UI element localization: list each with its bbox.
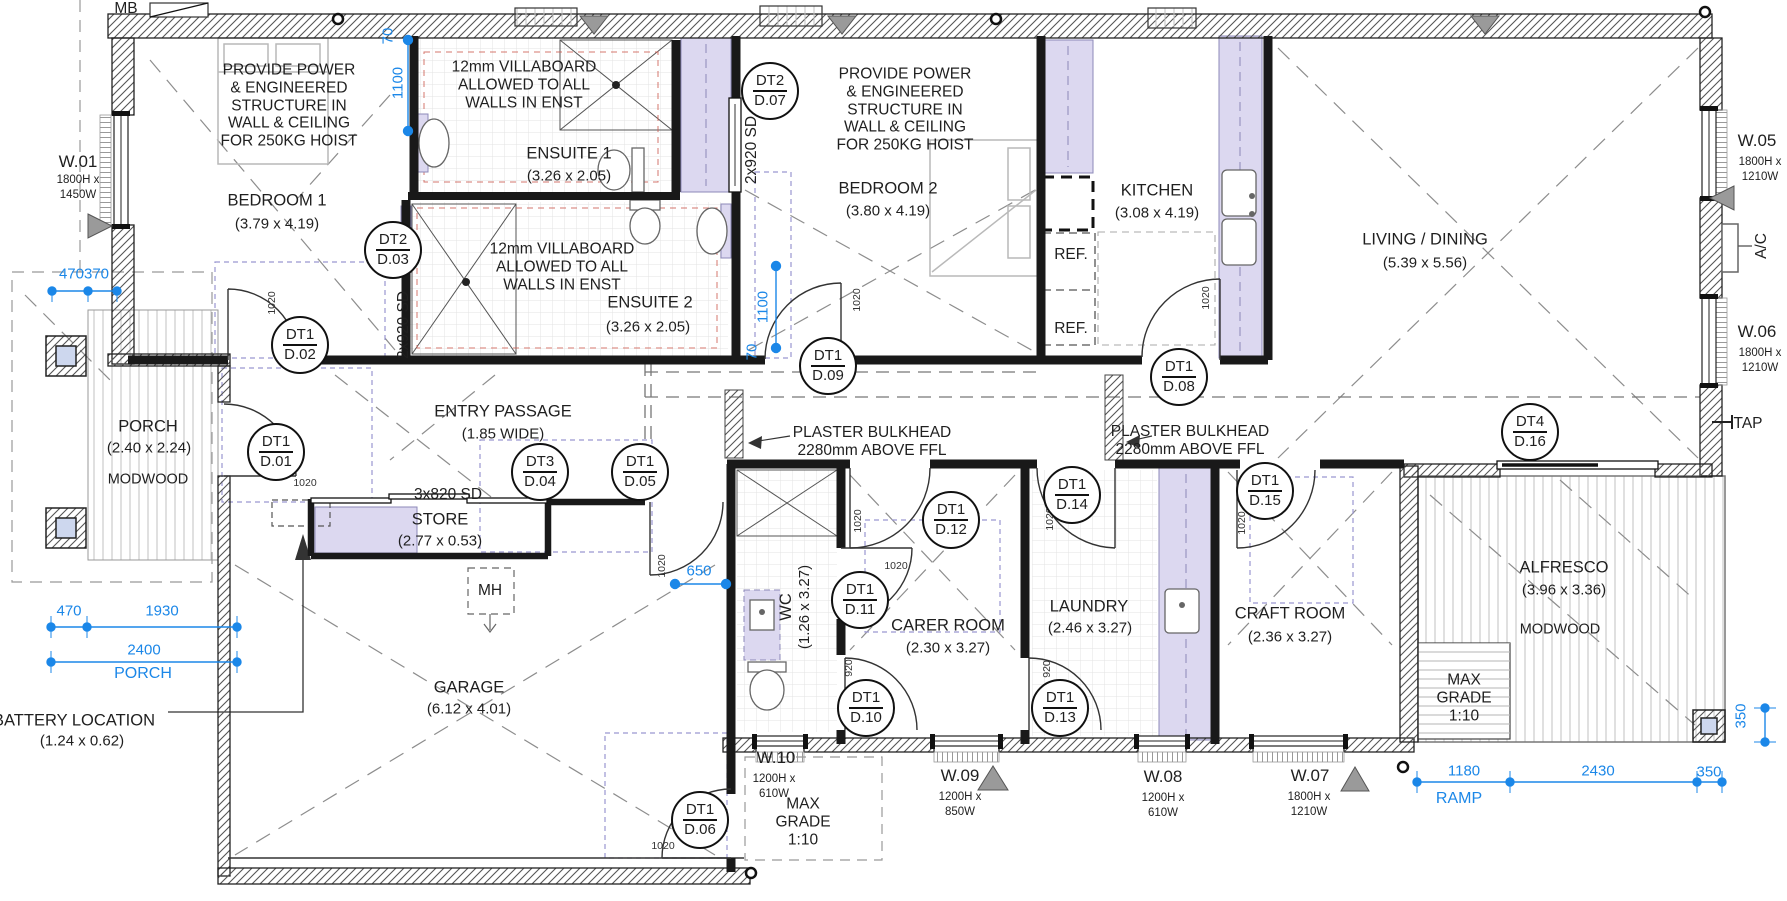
dim-mid-70: 70 bbox=[743, 344, 760, 361]
door-tag-d05: DT1D.05 bbox=[611, 443, 669, 501]
dim-porch-2400: 2400 bbox=[127, 641, 160, 658]
slider-3x820-label: 3x820 SD bbox=[414, 486, 482, 504]
door-tag-d14: DT1D.14 bbox=[1043, 466, 1101, 524]
slider-2x920-label-2: 2x920 SD bbox=[743, 116, 761, 184]
dim-350-bottom: 350 bbox=[1696, 763, 1721, 780]
room-label-wc: WC (1.26 x 3.27) bbox=[777, 565, 813, 649]
window-label-w10: W.10 bbox=[757, 748, 796, 768]
room-size-ensuite2: (3.26 x 2.05) bbox=[606, 318, 690, 335]
note-hoist-bedroom1: PROVIDE POWER& ENGINEEREDSTRUCTURE INWAL… bbox=[221, 61, 358, 150]
room-label-laundry: LAUNDRY bbox=[1050, 598, 1129, 617]
fridge-label-1: REF. bbox=[1054, 246, 1088, 264]
door-tag-d07: DT2D.07 bbox=[741, 62, 799, 120]
door-tag-d09: DT1D.09 bbox=[799, 337, 857, 395]
window-size-w07: 1800H x1210W bbox=[1288, 790, 1331, 820]
wc-size: (1.26 x 3.27) bbox=[796, 565, 813, 649]
room-label-ensuite2: ENSUITE 2 bbox=[607, 294, 692, 313]
leaf-width-d13: 920 bbox=[1041, 660, 1053, 678]
dim-ramp-word: RAMP bbox=[1436, 790, 1482, 808]
room-size-bedroom2: (3.80 x 4.19) bbox=[846, 202, 930, 219]
door-tag-d16: DT4D.16 bbox=[1501, 403, 1559, 461]
dim-porch-word: PORCH bbox=[114, 665, 172, 683]
dim-top-1100: 1100 bbox=[389, 67, 406, 99]
door-tag-d12: DT1D.12 bbox=[922, 491, 980, 549]
door-tag-d11: DT1D.11 bbox=[831, 571, 889, 629]
leaf-width-d09: 1020 bbox=[851, 288, 863, 311]
dim-porch-470: 470 bbox=[56, 602, 81, 619]
wc-name: WC bbox=[777, 565, 796, 649]
room-size-craft: (2.36 x 3.27) bbox=[1248, 628, 1332, 645]
room-label-store: STORE bbox=[412, 511, 469, 530]
room-label-entry: ENTRY PASSAGE bbox=[434, 403, 572, 422]
door-tag-d13: DT1D.13 bbox=[1031, 679, 1089, 737]
dim-top-70: 70 bbox=[379, 28, 396, 45]
door-tag-d04: DT3D.04 bbox=[511, 443, 569, 501]
window-size-w05: 1800H x1210W bbox=[1739, 155, 1782, 185]
door-tag-d03: DT2D.03 bbox=[364, 221, 422, 279]
window-size-w01: 1800H x1450W bbox=[57, 173, 100, 203]
dim-650: 650 bbox=[686, 562, 711, 579]
dim-2430: 2430 bbox=[1581, 762, 1614, 779]
meter-box-label: MB bbox=[114, 0, 137, 18]
leaf-width-d06: 1020 bbox=[651, 840, 674, 852]
fridge-label-2: REF. bbox=[1054, 320, 1088, 338]
leaf-width-d11: 1020 bbox=[884, 560, 907, 572]
door-tag-d15: DT1D.15 bbox=[1236, 462, 1294, 520]
room-size-alfresco: (3.96 x 3.36) bbox=[1522, 581, 1606, 598]
note-bulkhead-right: PLASTER BULKHEAD2280mm ABOVE FFL bbox=[1111, 423, 1270, 459]
room-size-laundry: (2.46 x 3.27) bbox=[1048, 619, 1132, 636]
room-size-bedroom1: (3.79 x 4.19) bbox=[235, 215, 319, 232]
door-tag-d10: DT1D.10 bbox=[837, 679, 895, 737]
room-label-bedroom1: BEDROOM 1 bbox=[227, 192, 326, 211]
window-size-w10: 1200H x610W bbox=[753, 772, 796, 802]
leaf-width-d05: 1020 bbox=[656, 554, 668, 577]
room-label-bedroom2: BEDROOM 2 bbox=[838, 180, 937, 199]
note-max-grade-alfresco: MAXGRADE1:10 bbox=[1436, 671, 1491, 724]
battery-label: BATTERY LOCATION bbox=[0, 712, 155, 731]
dim-470-370: 470370 bbox=[59, 265, 109, 282]
dim-porch-1930: 1930 bbox=[145, 602, 178, 619]
leaf-width-d15: 1020 bbox=[1236, 511, 1248, 534]
door-tag-d06: DT1D.06 bbox=[671, 791, 729, 849]
room-label-ensuite1: ENSUITE 1 bbox=[526, 145, 611, 164]
leaf-width-d01: 1020 bbox=[293, 477, 316, 489]
room-label-kitchen: KITCHEN bbox=[1121, 182, 1193, 201]
note-villaboard-ensuite1: 12mm VILLABOARDALLOWED TO ALLWALLS IN EN… bbox=[452, 58, 597, 111]
slider-2x920-label-1: 2x920 SD bbox=[395, 291, 413, 359]
door-tag-d08: DT1D.08 bbox=[1150, 348, 1208, 406]
battery-size: (1.24 x 0.62) bbox=[40, 732, 124, 749]
window-size-w09: 1200H x850W bbox=[939, 790, 982, 820]
note-max-grade-garage: MAXGRADE1:10 bbox=[775, 795, 830, 848]
window-label-w08: W.08 bbox=[1144, 767, 1183, 787]
door-tag-d01: DT1D.01 bbox=[247, 423, 305, 481]
room-size-kitchen: (3.08 x 4.19) bbox=[1115, 204, 1199, 221]
window-label-w06: W.06 bbox=[1738, 322, 1777, 342]
room-size-carer: (2.30 x 3.27) bbox=[906, 639, 990, 656]
room-label-craft: CRAFT ROOM bbox=[1235, 605, 1346, 624]
dim-mid-1100: 1100 bbox=[754, 291, 771, 323]
leaf-width-d02: 1020 bbox=[266, 291, 278, 314]
room-label-porch: PORCH bbox=[118, 418, 178, 437]
room-label-carer: CARER ROOM bbox=[891, 617, 1005, 636]
ac-label: A/C bbox=[1753, 233, 1771, 259]
room-size-garage: (6.12 x 4.01) bbox=[427, 700, 511, 717]
window-label-w09: W.09 bbox=[941, 766, 980, 786]
leaf-width-d10: 920 bbox=[843, 659, 855, 677]
floor-plan: BEDROOM 1 (3.79 x 4.19) ENSUITE 1 (3.26 … bbox=[0, 0, 1787, 901]
tap-label: TAP bbox=[1734, 415, 1763, 433]
room-label-living: LIVING / DINING bbox=[1362, 231, 1488, 250]
door-tag-d02: DT1D.02 bbox=[271, 316, 329, 374]
window-label-w05: W.05 bbox=[1738, 131, 1777, 151]
leaf-width-d08: 1020 bbox=[1200, 286, 1212, 309]
dim-350-right: 350 bbox=[1732, 703, 1749, 728]
room-label-garage: GARAGE bbox=[434, 679, 505, 698]
note-hoist-bedroom2: PROVIDE POWER& ENGINEEREDSTRUCTURE INWAL… bbox=[837, 65, 974, 154]
window-size-w08: 1200H x610W bbox=[1142, 791, 1185, 821]
window-size-w06: 1800H x1210W bbox=[1739, 346, 1782, 376]
leaf-width-d12: 1020 bbox=[852, 509, 864, 532]
note-bulkhead-left: PLASTER BULKHEAD2280mm ABOVE FFL bbox=[793, 424, 952, 460]
porch-material: MODWOOD bbox=[108, 472, 189, 489]
room-size-entry: (1.85 WIDE) bbox=[462, 425, 545, 442]
alfresco-material: MODWOOD bbox=[1520, 622, 1601, 639]
room-label-alfresco: ALFRESCO bbox=[1520, 559, 1609, 578]
room-size-ensuite1: (3.26 x 2.05) bbox=[527, 167, 611, 184]
window-label-w01: W.01 bbox=[59, 152, 98, 172]
dim-ramp-1180: 1180 bbox=[1448, 762, 1480, 779]
manhole-label: MH bbox=[478, 582, 502, 600]
window-label-w07: W.07 bbox=[1291, 766, 1330, 786]
room-size-store: (2.77 x 0.53) bbox=[398, 532, 482, 549]
note-villaboard-ensuite2: 12mm VILLABOARDALLOWED TO ALLWALLS IN EN… bbox=[490, 240, 635, 293]
room-size-porch: (2.40 x 2.24) bbox=[107, 439, 191, 456]
room-size-living: (5.39 x 5.56) bbox=[1383, 254, 1467, 271]
